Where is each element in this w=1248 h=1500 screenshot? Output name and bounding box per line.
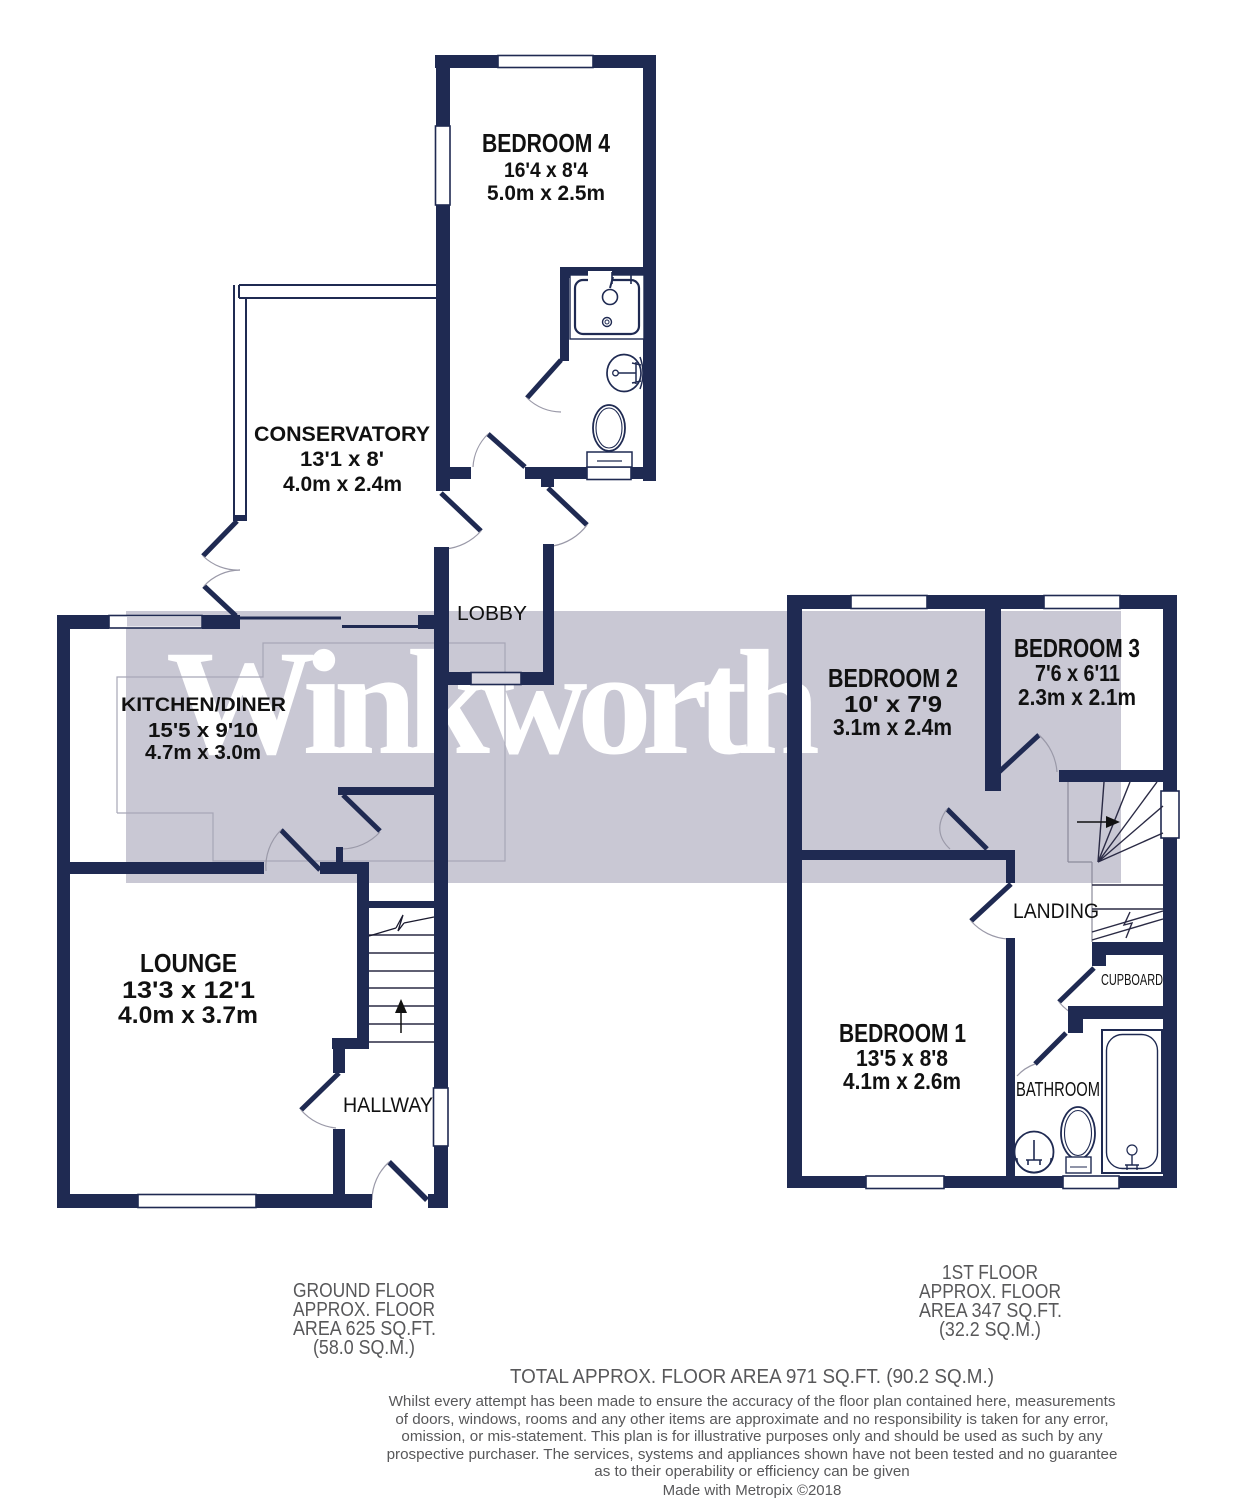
svg-text:4.1m x 2.6m: 4.1m x 2.6m [843,1068,961,1094]
svg-text:4.0m x 2.4m: 4.0m x 2.4m [283,473,402,496]
svg-text:7'6 x 6'11: 7'6 x 6'11 [1035,660,1120,686]
svg-text:4.7m x 3.0m: 4.7m x 3.0m [145,742,261,764]
svg-text:BEDROOM 3: BEDROOM 3 [1014,633,1140,663]
svg-text:prospective purchaser. The ser: prospective purchaser. The services, sys… [387,1446,1118,1463]
svg-text:BEDROOM 4: BEDROOM 4 [482,128,610,158]
svg-text:Made with Metropix ©2018: Made with Metropix ©2018 [663,1482,842,1499]
svg-text:(32.2 SQ.M.): (32.2 SQ.M.) [939,1319,1041,1341]
svg-text:13'1 x 8': 13'1 x 8' [300,448,384,471]
svg-text:5.0m x 2.5m: 5.0m x 2.5m [487,182,605,205]
svg-text:KITCHEN/DINER: KITCHEN/DINER [121,695,286,716]
svg-text:BEDROOM 2: BEDROOM 2 [828,663,958,693]
svg-text:3.1m x 2.4m: 3.1m x 2.4m [833,714,952,740]
svg-text:(58.0 SQ.M.): (58.0 SQ.M.) [313,1337,415,1359]
svg-text:13'3 x 12'1: 13'3 x 12'1 [122,977,255,1004]
svg-text:BEDROOM 1: BEDROOM 1 [839,1018,966,1048]
svg-text:HALLWAY: HALLWAY [343,1094,433,1117]
svg-text:BATHROOM: BATHROOM [1016,1079,1100,1101]
svg-text:CUPBOARD: CUPBOARD [1101,972,1163,989]
svg-text:15'5 x 9'10: 15'5 x 9'10 [148,720,258,742]
svg-text:4.0m x 3.7m: 4.0m x 3.7m [118,1002,258,1029]
svg-text:as to their operability or eff: as to their operability or efficiency ca… [594,1463,909,1480]
svg-text:TOTAL APPROX. FLOOR AREA 971 S: TOTAL APPROX. FLOOR AREA 971 SQ.FT. (90.… [510,1366,994,1388]
svg-text:LOBBY: LOBBY [457,603,527,625]
svg-text:2.3m x 2.1m: 2.3m x 2.1m [1018,684,1136,710]
svg-text:of doors, windows, rooms and a: of doors, windows, rooms and any other i… [395,1411,1108,1428]
svg-text:16'4 x 8'4: 16'4 x 8'4 [504,159,588,182]
svg-text:LOUNGE: LOUNGE [140,948,237,978]
svg-text:Whilst every attempt has been: Whilst every attempt has been made to en… [389,1393,1116,1410]
svg-text:omission, or mis-statement. Th: omission, or mis-statement. This plan is… [401,1428,1103,1445]
svg-text:LANDING: LANDING [1013,900,1099,923]
svg-text:CONSERVATORY: CONSERVATORY [254,423,430,446]
